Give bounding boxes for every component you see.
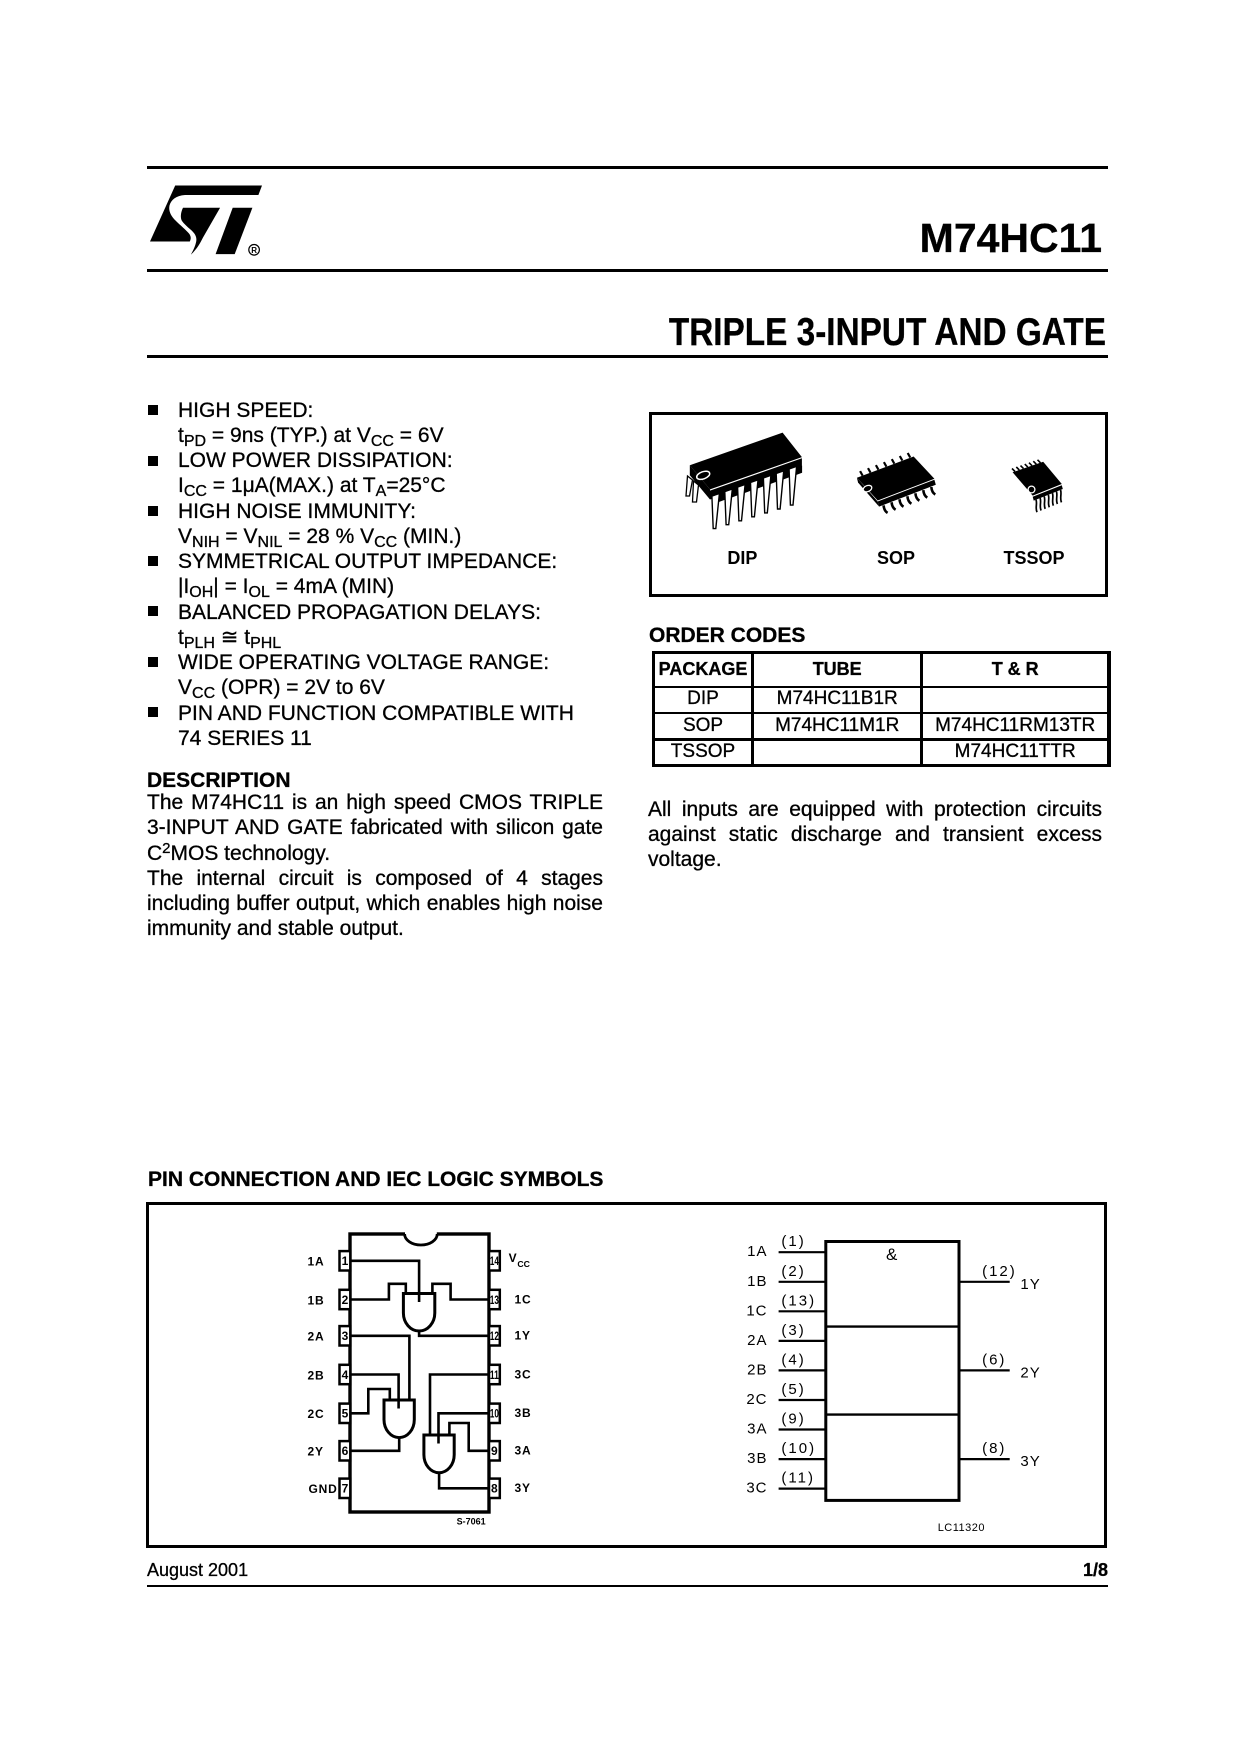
svg-text:2Y: 2Y bbox=[1020, 1364, 1040, 1381]
svg-text:8: 8 bbox=[491, 1482, 498, 1496]
svg-text:LC11320: LC11320 bbox=[938, 1522, 985, 1534]
svg-text:5: 5 bbox=[342, 1407, 349, 1421]
svg-text:(9): (9) bbox=[781, 1411, 805, 1428]
svg-text:SOP: SOP bbox=[877, 548, 915, 568]
svg-text:2B: 2B bbox=[747, 1361, 767, 1378]
svg-text:6: 6 bbox=[342, 1444, 349, 1458]
svg-text:&: & bbox=[886, 1245, 898, 1264]
svg-text:1B: 1B bbox=[308, 1293, 325, 1307]
svg-text:(4): (4) bbox=[781, 1351, 805, 1368]
svg-text:1C: 1C bbox=[515, 1292, 532, 1306]
svg-text:VCC: VCC bbox=[509, 1251, 531, 1269]
svg-text:1C: 1C bbox=[746, 1302, 767, 1319]
svg-text:12: 12 bbox=[490, 1329, 499, 1343]
svg-text:1A: 1A bbox=[308, 1255, 325, 1269]
svg-text:2A: 2A bbox=[747, 1332, 767, 1349]
svg-text:(12): (12) bbox=[982, 1263, 1017, 1280]
svg-text:(8): (8) bbox=[982, 1440, 1006, 1457]
svg-text:GND: GND bbox=[309, 1482, 338, 1496]
svg-text:2A: 2A bbox=[308, 1330, 325, 1344]
svg-text:9: 9 bbox=[491, 1444, 498, 1458]
svg-text:4: 4 bbox=[342, 1368, 349, 1382]
svg-text:2C: 2C bbox=[746, 1391, 767, 1408]
svg-text:10: 10 bbox=[490, 1407, 499, 1421]
svg-text:DIP: DIP bbox=[727, 548, 757, 568]
svg-text:7: 7 bbox=[342, 1482, 349, 1496]
svg-text:1Y: 1Y bbox=[1020, 1276, 1040, 1293]
svg-text:(13): (13) bbox=[781, 1292, 816, 1309]
svg-text:3A: 3A bbox=[747, 1421, 767, 1438]
svg-text:2: 2 bbox=[342, 1293, 349, 1307]
svg-text:(5): (5) bbox=[781, 1381, 805, 1398]
svg-text:(10): (10) bbox=[781, 1440, 816, 1457]
svg-text:3A: 3A bbox=[515, 1444, 532, 1458]
svg-text:3B: 3B bbox=[515, 1406, 532, 1420]
svg-text:2B: 2B bbox=[308, 1368, 325, 1382]
svg-text:3: 3 bbox=[342, 1329, 349, 1343]
svg-text:S-7061: S-7061 bbox=[457, 1517, 486, 1527]
svg-text:1A: 1A bbox=[747, 1243, 767, 1260]
svg-text:(3): (3) bbox=[781, 1322, 805, 1339]
svg-text:1: 1 bbox=[342, 1254, 349, 1268]
svg-text:(2): (2) bbox=[781, 1263, 805, 1280]
svg-text:1Y: 1Y bbox=[515, 1329, 531, 1343]
svg-text:13: 13 bbox=[490, 1293, 499, 1307]
svg-text:1B: 1B bbox=[747, 1273, 767, 1290]
svg-text:(11): (11) bbox=[781, 1470, 815, 1487]
svg-text:3Y: 3Y bbox=[1020, 1453, 1040, 1470]
svg-text:3B: 3B bbox=[747, 1450, 767, 1467]
svg-text:2Y: 2Y bbox=[308, 1445, 324, 1459]
svg-text:11: 11 bbox=[490, 1368, 499, 1382]
svg-text:3Y: 3Y bbox=[515, 1481, 531, 1495]
svg-text:2C: 2C bbox=[308, 1407, 325, 1421]
svg-text:14: 14 bbox=[490, 1254, 499, 1268]
svg-text:(6): (6) bbox=[982, 1351, 1006, 1368]
svg-text:3C: 3C bbox=[515, 1367, 532, 1381]
svg-text:TSSOP: TSSOP bbox=[1003, 548, 1064, 568]
svg-text:(1): (1) bbox=[781, 1233, 805, 1250]
svg-text:3C: 3C bbox=[746, 1480, 767, 1497]
